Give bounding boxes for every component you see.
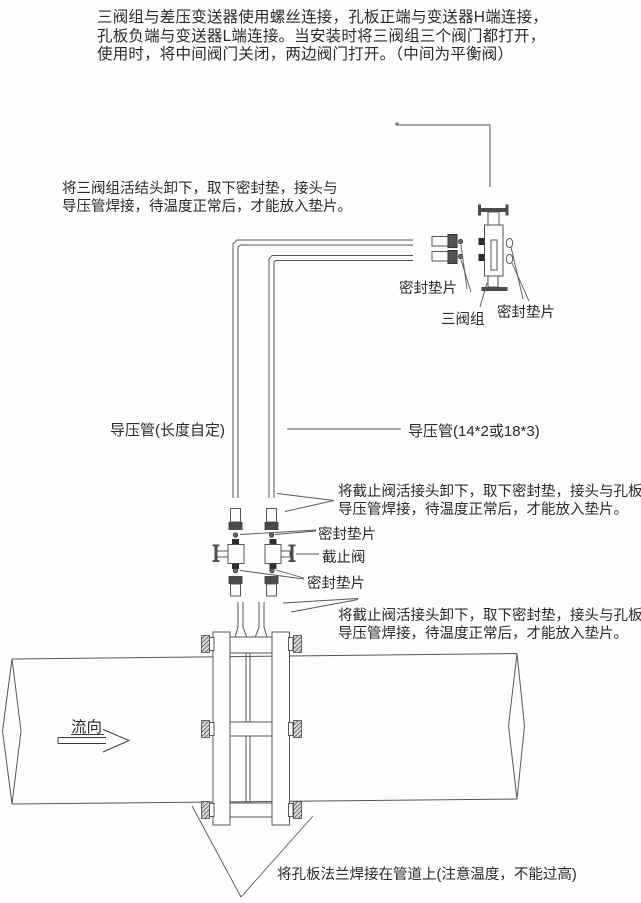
bottom-note: 将孔板法兰焊接在管道上(注意温度，不能过高) <box>277 866 577 884</box>
valve-port <box>232 539 239 545</box>
left-note-line1: 将三阀组活结头卸下，取下密封垫，接头与 <box>62 181 352 199</box>
right-note-upper: 将截止阀活接头卸下，取下密封垫，接头与孔板 导压管焊接，待温度正常后，才能放入垫… <box>338 483 641 519</box>
arrow-head <box>103 730 129 753</box>
left-note: 将三阀组活结头卸下，取下密封垫，接头与 导压管焊接，待温度正常后，才能放入垫片。 <box>62 181 352 216</box>
valve-stem <box>281 551 290 557</box>
stop-valve-right <box>265 539 296 573</box>
top-paragraph-line3: 使用时，将中间阀门关闭，两边阀门打开。（中间为平衡阀） <box>97 46 548 65</box>
top-paragraph-line2: 孔板负端与变送器L端连接。当安装时将三阀组三个阀门都打开， <box>97 28 548 47</box>
valve-handle <box>215 546 218 562</box>
bolt-nut <box>210 638 215 651</box>
valve-stem <box>217 551 228 557</box>
valve-body <box>265 545 281 564</box>
orifice-flange-assembly <box>202 632 302 825</box>
handle-bar <box>481 208 507 212</box>
label-seal-gasket-upper: 密封垫片 <box>318 523 376 544</box>
gasket-dot <box>233 533 237 537</box>
bolt-stud <box>202 802 210 819</box>
flange-plate-right <box>272 632 290 825</box>
union-nut <box>265 576 279 584</box>
pipe-top-edge <box>12 654 517 660</box>
tap-block <box>230 637 272 653</box>
signal-line <box>396 123 491 188</box>
bolt-bar-middle <box>230 722 272 736</box>
bolt-stud <box>202 721 210 738</box>
gasket-dot <box>270 568 274 572</box>
bolt-nut <box>289 638 294 651</box>
valve-handle <box>291 546 294 562</box>
installation-diagram <box>0 0 641 903</box>
right-note-lower-line2: 导压管焊接，待温度正常后，才能放入垫片。 <box>338 625 641 643</box>
top-paragraph-line1: 三阀组与差压变送器使用螺丝连接，孔板正端与变送器H端连接， <box>97 9 548 28</box>
right-note-upper-line2: 导压管焊接，待温度正常后，才能放入垫片。 <box>338 501 641 519</box>
flange-plate-left <box>213 632 230 825</box>
label-stop-valve: 截止阀 <box>322 546 366 567</box>
label-seal-gasket-right: 密封垫片 <box>497 301 555 322</box>
pipe-break-right <box>509 654 525 800</box>
bolt-nut <box>289 723 294 736</box>
impulse-pipes-upper <box>233 240 413 498</box>
gasket-dot <box>269 533 273 537</box>
valve-port <box>270 539 277 545</box>
label-three-valve-group: 三阀组 <box>441 308 485 329</box>
stop-valves <box>213 539 296 573</box>
union-body <box>231 509 241 523</box>
lower-stem <box>488 276 498 287</box>
pipe-break-left <box>3 659 22 804</box>
label-impulse-pipe-left: 导压管(长度自定) <box>110 419 225 440</box>
label-seal-gasket-left: 密封垫片 <box>399 277 457 298</box>
union-nut <box>448 251 457 264</box>
bolt-bar-bottom <box>230 803 272 817</box>
diagram-page: 三阀组与差压变送器使用螺丝连接，孔板正端与变送器H端连接， 孔板负端与变送器L端… <box>0 0 641 903</box>
label-seal-gasket-lower: 密封垫片 <box>307 572 365 593</box>
bolt-nut <box>210 804 215 817</box>
union-body <box>432 237 448 247</box>
union-nut <box>265 522 279 530</box>
port-h <box>479 238 486 245</box>
label-flow-direction: 流向 <box>71 715 102 737</box>
union-nut <box>229 576 243 584</box>
impulse-pipes-lower <box>235 602 268 639</box>
bolt-stud <box>294 802 302 819</box>
upper-stem <box>488 212 499 225</box>
transmitter-union-fittings <box>432 235 463 264</box>
gasket-dot <box>233 568 237 572</box>
union-body <box>231 584 241 596</box>
union-body <box>267 509 277 523</box>
union-nut <box>229 522 243 530</box>
union-body <box>432 252 448 262</box>
union-fittings-lower <box>229 576 279 596</box>
port-l <box>479 254 486 261</box>
right-note-upper-line1: 将截止阀活接头卸下，取下密封垫，接头与孔板 <box>338 483 641 501</box>
stop-valve-left <box>213 539 245 573</box>
top-paragraph: 三阀组与差压变送器使用螺丝连接，孔板正端与变送器H端连接， 孔板负端与变送器L端… <box>97 9 548 65</box>
bolt-nut <box>289 804 294 817</box>
gasket-ring-upper <box>506 238 512 247</box>
label-impulse-pipe-right: 导压管(14*2或18*3) <box>408 420 540 441</box>
bolt-nut <box>210 723 215 736</box>
bolt-stud <box>202 636 210 653</box>
right-note-lower: 将截止阀活接头卸下，取下密封垫，接头与孔板 导压管焊接，待温度正常后，才能放入垫… <box>338 607 641 643</box>
gasket-dot <box>458 239 462 243</box>
bolt-stud <box>294 721 302 738</box>
union-body <box>267 584 277 596</box>
valve-body <box>228 545 244 564</box>
gasket-ring-lower <box>506 254 512 263</box>
bolt-stud <box>294 636 302 653</box>
union-nut <box>448 235 457 248</box>
left-note-line2: 导压管焊接，待温度正常后，才能放入垫片。 <box>62 199 352 217</box>
transmitter-manifold <box>478 205 513 292</box>
right-note-lower-line1: 将截止阀活接头卸下，取下密封垫，接头与孔板 <box>338 607 641 625</box>
manifold-body <box>485 225 504 276</box>
